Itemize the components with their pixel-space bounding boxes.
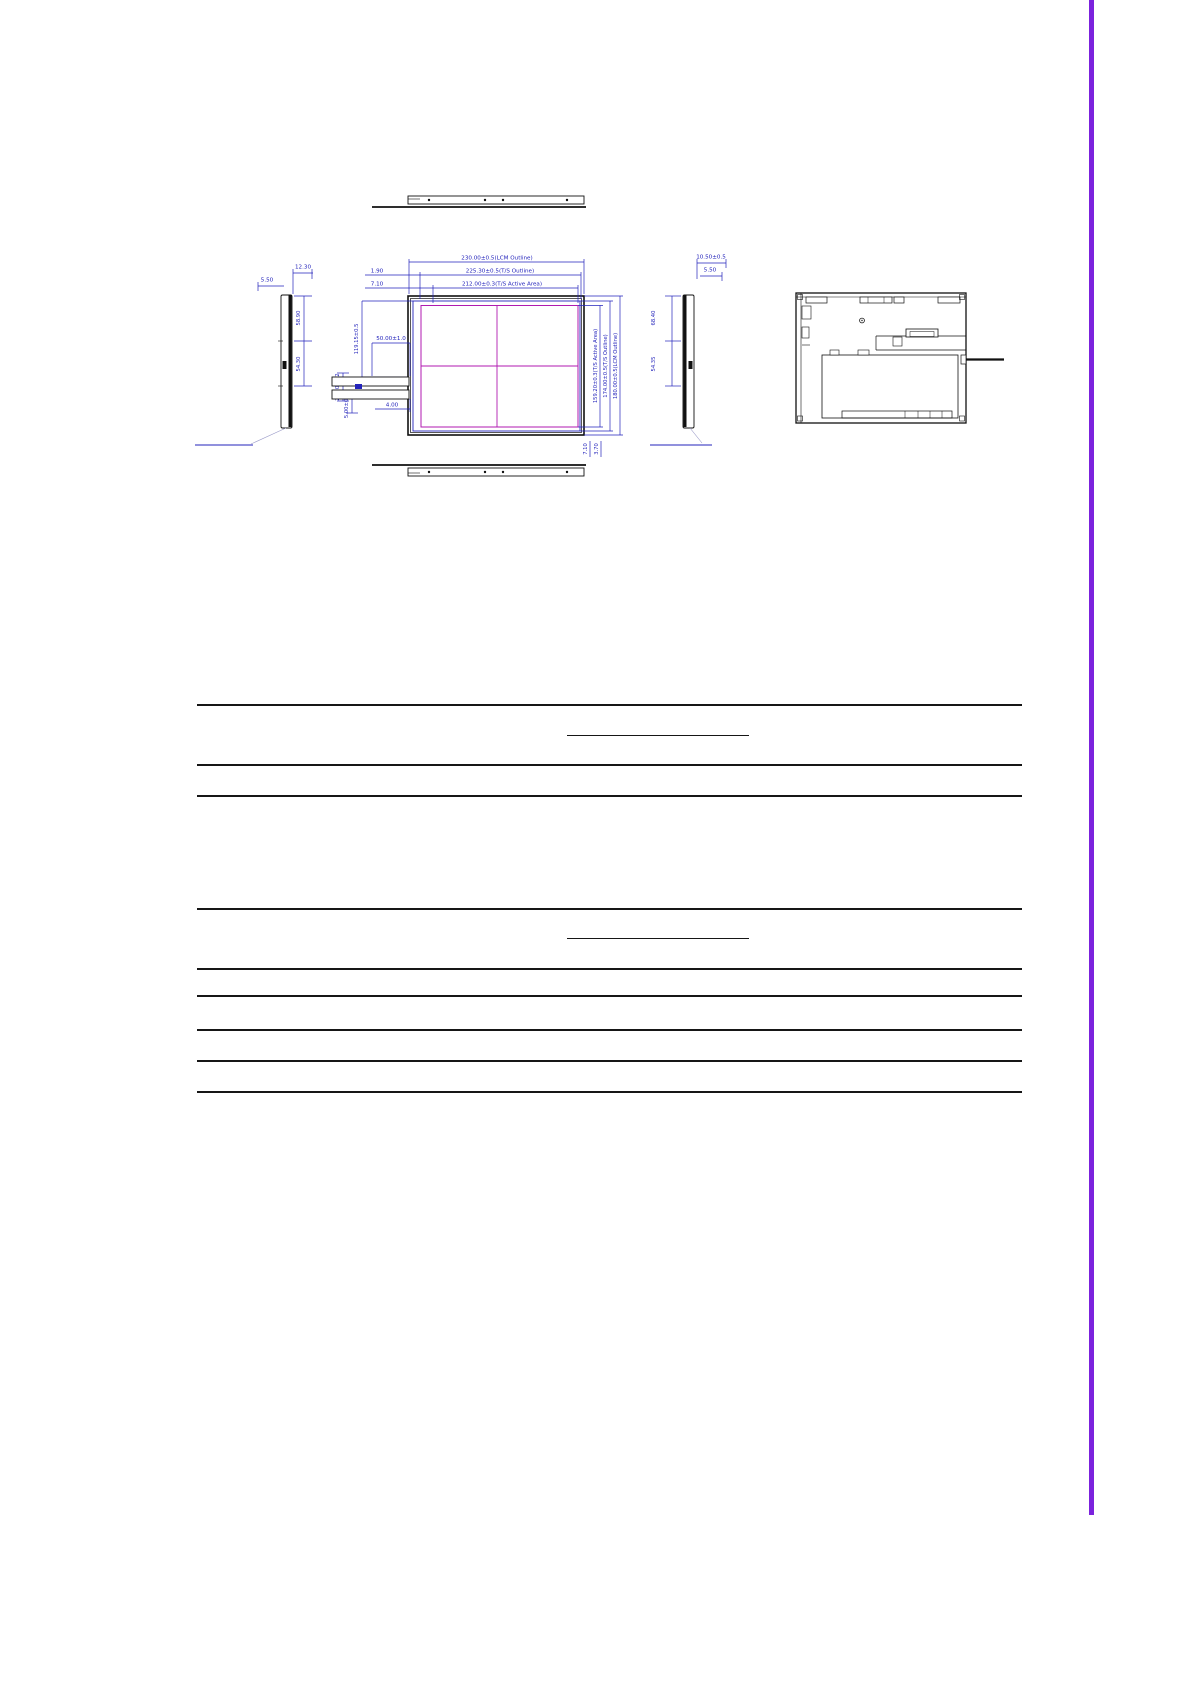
- dim-fpc-edge-offset: 4.00: [386, 403, 399, 409]
- dim-bottom-gap-active: 3.70: [594, 443, 600, 455]
- dim-height-ts: 174.00±0.5(T/S Outline): [603, 334, 609, 397]
- table-rule-top: [197, 704, 1022, 706]
- mechanical-drawing: 230.00±0.5(LCM Outline) 225.30±0.5(T/S O…: [0, 0, 1190, 560]
- dim-right-thickness-total: 10.50±0.5: [696, 255, 726, 261]
- table-rule-top: [197, 908, 1022, 910]
- dim-edge-gap-ts: 1.90: [371, 269, 384, 275]
- page-accent-bar: [1089, 0, 1094, 1515]
- table-rule: [197, 795, 1022, 797]
- back-view-drawing: [796, 293, 1004, 423]
- dim-height-active: 159.20±0.3(T/S Active Area): [593, 329, 599, 403]
- dim-right-thickness-front: 5.50: [704, 268, 717, 274]
- section-title-underline: [567, 938, 749, 939]
- table-rule: [197, 1029, 1022, 1031]
- datasheet-page: 230.00±0.5(LCM Outline) 225.30±0.5(T/S O…: [0, 0, 1190, 1684]
- fpc-tail: [332, 377, 409, 399]
- dim-left-upper-span: 58.90: [296, 311, 302, 326]
- dim-width-active: 212.00±0.3(T/S Active Area): [462, 282, 542, 288]
- dim-right-lower-span: 54.35: [651, 357, 657, 372]
- table-rule: [197, 1091, 1022, 1093]
- dim-width-ts: 225.30±0.5(T/S Outline): [466, 269, 534, 275]
- dim-edge-gap-active: 7.10: [371, 282, 384, 288]
- table-rule: [197, 995, 1022, 997]
- dim-width-lcm: 230.00±0.5(LCM Outline): [461, 256, 532, 262]
- table-rule: [197, 764, 1022, 766]
- section-title-underline: [567, 735, 749, 736]
- table-rule: [197, 1060, 1022, 1062]
- lcm-outline-rect: [408, 296, 584, 435]
- dim-fpc-center-offset: 119.15±0.5: [354, 324, 360, 355]
- top-view-drawing: [372, 196, 586, 207]
- dim-right-upper-span: 68.40: [651, 311, 657, 326]
- left-side-view-drawing: 12.30 5.50 58.90 54.30: [195, 265, 313, 446]
- table-rule: [197, 968, 1022, 970]
- front-view-drawing: 230.00±0.5(LCM Outline) 225.30±0.5(T/S O…: [332, 256, 623, 458]
- dim-left-lower-span: 54.30: [296, 357, 302, 372]
- dim-left-thickness-front: 5.50: [261, 278, 274, 284]
- dim-bottom-gap-ts: 7.10: [583, 443, 589, 455]
- dim-height-lcm: 180.00±0.5(LCM Outline): [613, 333, 619, 399]
- right-side-view-drawing: 10.50±0.5 5.50 68.40 54.35: [650, 255, 726, 446]
- bottom-view-drawing: [372, 465, 586, 476]
- dim-fpc-width: 50.00±1.0: [376, 336, 406, 342]
- dim-left-thickness-total: 12.30: [295, 265, 311, 271]
